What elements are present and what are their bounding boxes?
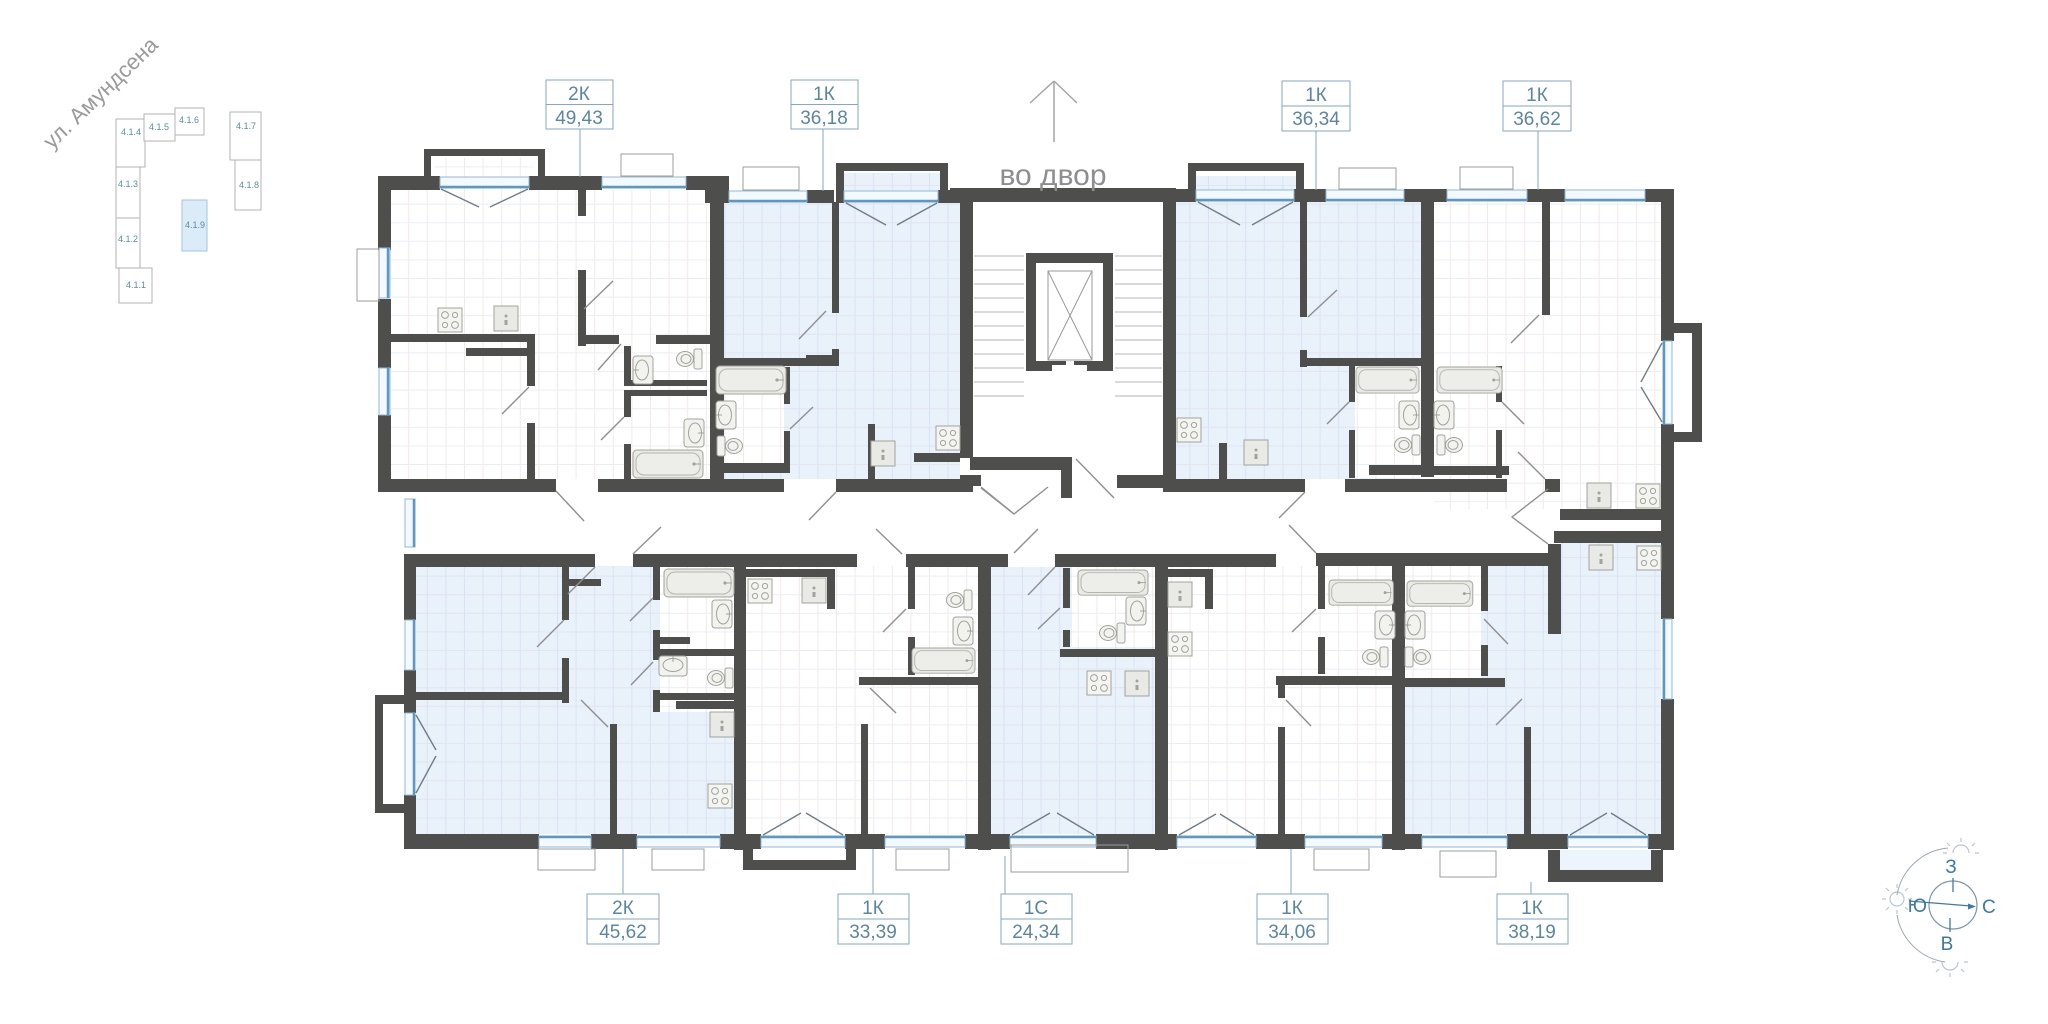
svg-text:1К: 1К <box>1521 898 1543 919</box>
svg-text:4.1.6: 4.1.6 <box>179 115 199 125</box>
svg-text:33,39: 33,39 <box>849 922 897 943</box>
svg-text:1К: 1К <box>813 84 835 105</box>
svg-text:4.1.7: 4.1.7 <box>236 121 256 131</box>
svg-text:4.1.2: 4.1.2 <box>118 234 138 244</box>
svg-text:36,18: 36,18 <box>800 108 848 129</box>
svg-text:С: С <box>1982 897 1996 918</box>
svg-text:во двор: во двор <box>999 159 1106 192</box>
svg-text:34,06: 34,06 <box>1268 922 1316 943</box>
svg-text:45,62: 45,62 <box>599 922 647 943</box>
svg-text:1С: 1С <box>1024 898 1048 919</box>
svg-text:4.1.8: 4.1.8 <box>239 180 259 190</box>
svg-text:4.1.4: 4.1.4 <box>121 127 141 137</box>
svg-text:1К: 1К <box>862 898 884 919</box>
svg-text:4.1.5: 4.1.5 <box>149 122 169 132</box>
svg-text:4.1.9: 4.1.9 <box>185 220 205 230</box>
svg-text:2К: 2К <box>612 898 634 919</box>
svg-text:36,34: 36,34 <box>1292 109 1340 130</box>
svg-text:В: В <box>1941 934 1954 955</box>
svg-text:24,34: 24,34 <box>1012 922 1060 943</box>
svg-text:4.1.1: 4.1.1 <box>126 280 146 290</box>
svg-text:2К: 2К <box>568 84 590 105</box>
svg-text:З: З <box>1945 857 1956 878</box>
svg-text:1К: 1К <box>1305 85 1327 106</box>
svg-text:36,62: 36,62 <box>1513 109 1561 130</box>
svg-text:1К: 1К <box>1526 85 1548 106</box>
svg-text:49,43: 49,43 <box>555 108 603 129</box>
svg-text:1К: 1К <box>1281 898 1303 919</box>
svg-text:38,19: 38,19 <box>1508 922 1556 943</box>
svg-text:4.1.3: 4.1.3 <box>118 179 138 189</box>
